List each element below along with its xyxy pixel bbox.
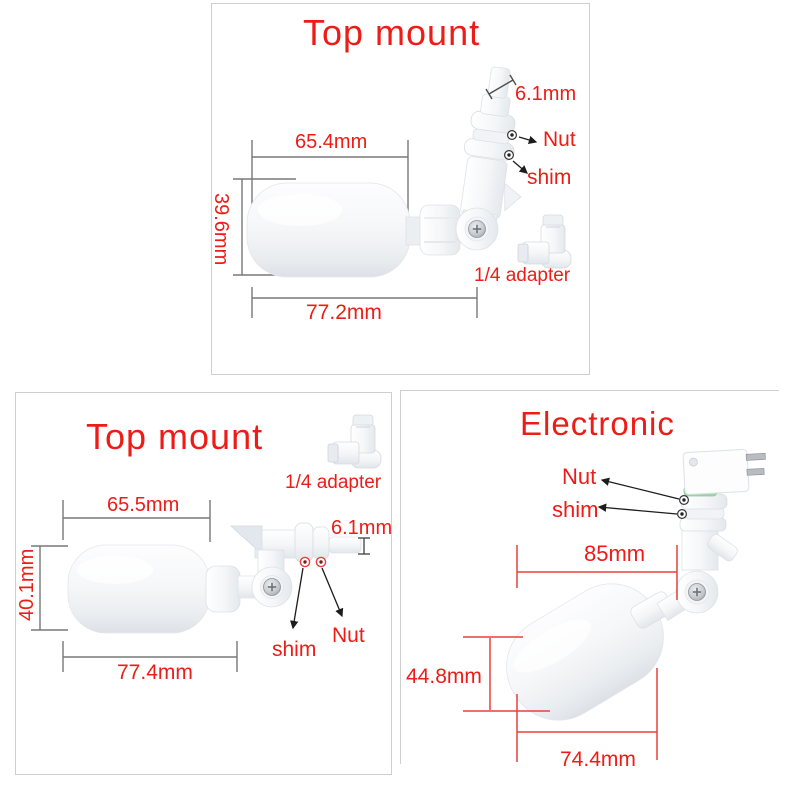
p3-callouts — [599, 480, 688, 518]
p1-width-top-label: 65.4mm — [295, 132, 367, 152]
p1-height-left-label: 39.6mm — [211, 193, 231, 265]
float-ball — [68, 545, 210, 633]
p3-width-bottom-label: 74.4mm — [560, 749, 636, 770]
p1-adapter-label: 1/4 adapter — [474, 266, 570, 285]
p3-height-left-label: 44.8mm — [406, 666, 482, 687]
switch-terminal — [746, 453, 765, 460]
p1-shim-label: shim — [527, 167, 571, 188]
p2-width-top-label: 65.5mm — [107, 495, 179, 515]
p2-adapter-label: 1/4 adapter — [285, 473, 381, 492]
p3-shim-label: shim — [552, 499, 598, 521]
p1-nut-label: Nut — [543, 129, 576, 150]
p2-callouts — [293, 557, 342, 628]
p3-nut-label: Nut — [562, 466, 596, 488]
p2-height-left-label: 40.1mm — [17, 551, 37, 621]
product-dimension-sheet: Top mount 65.4mm 39.6mm 77.2mm 6.1mm Nut… — [0, 0, 800, 800]
p1-width-bottom-label: 77.2mm — [306, 302, 382, 323]
p1-outlet-label: 6.1mm — [515, 84, 576, 104]
p2-nut-label: Nut — [332, 625, 365, 646]
p2-shim-label: shim — [272, 639, 316, 660]
micro-switch — [683, 448, 767, 494]
p2-outlet-label: 6.1mm — [331, 518, 392, 538]
switch-terminal — [747, 468, 764, 475]
p3-title: Electronic — [520, 407, 675, 440]
float-ball — [247, 183, 410, 277]
p2-title: Top mount — [86, 419, 263, 455]
p3-product — [463, 448, 767, 762]
p1-title: Top mount — [303, 15, 480, 51]
valve-body — [680, 494, 739, 570]
mounting-nut — [420, 205, 460, 255]
p3-width-top-label: 85mm — [584, 543, 645, 565]
p2-width-bottom-label: 77.4mm — [117, 662, 193, 683]
